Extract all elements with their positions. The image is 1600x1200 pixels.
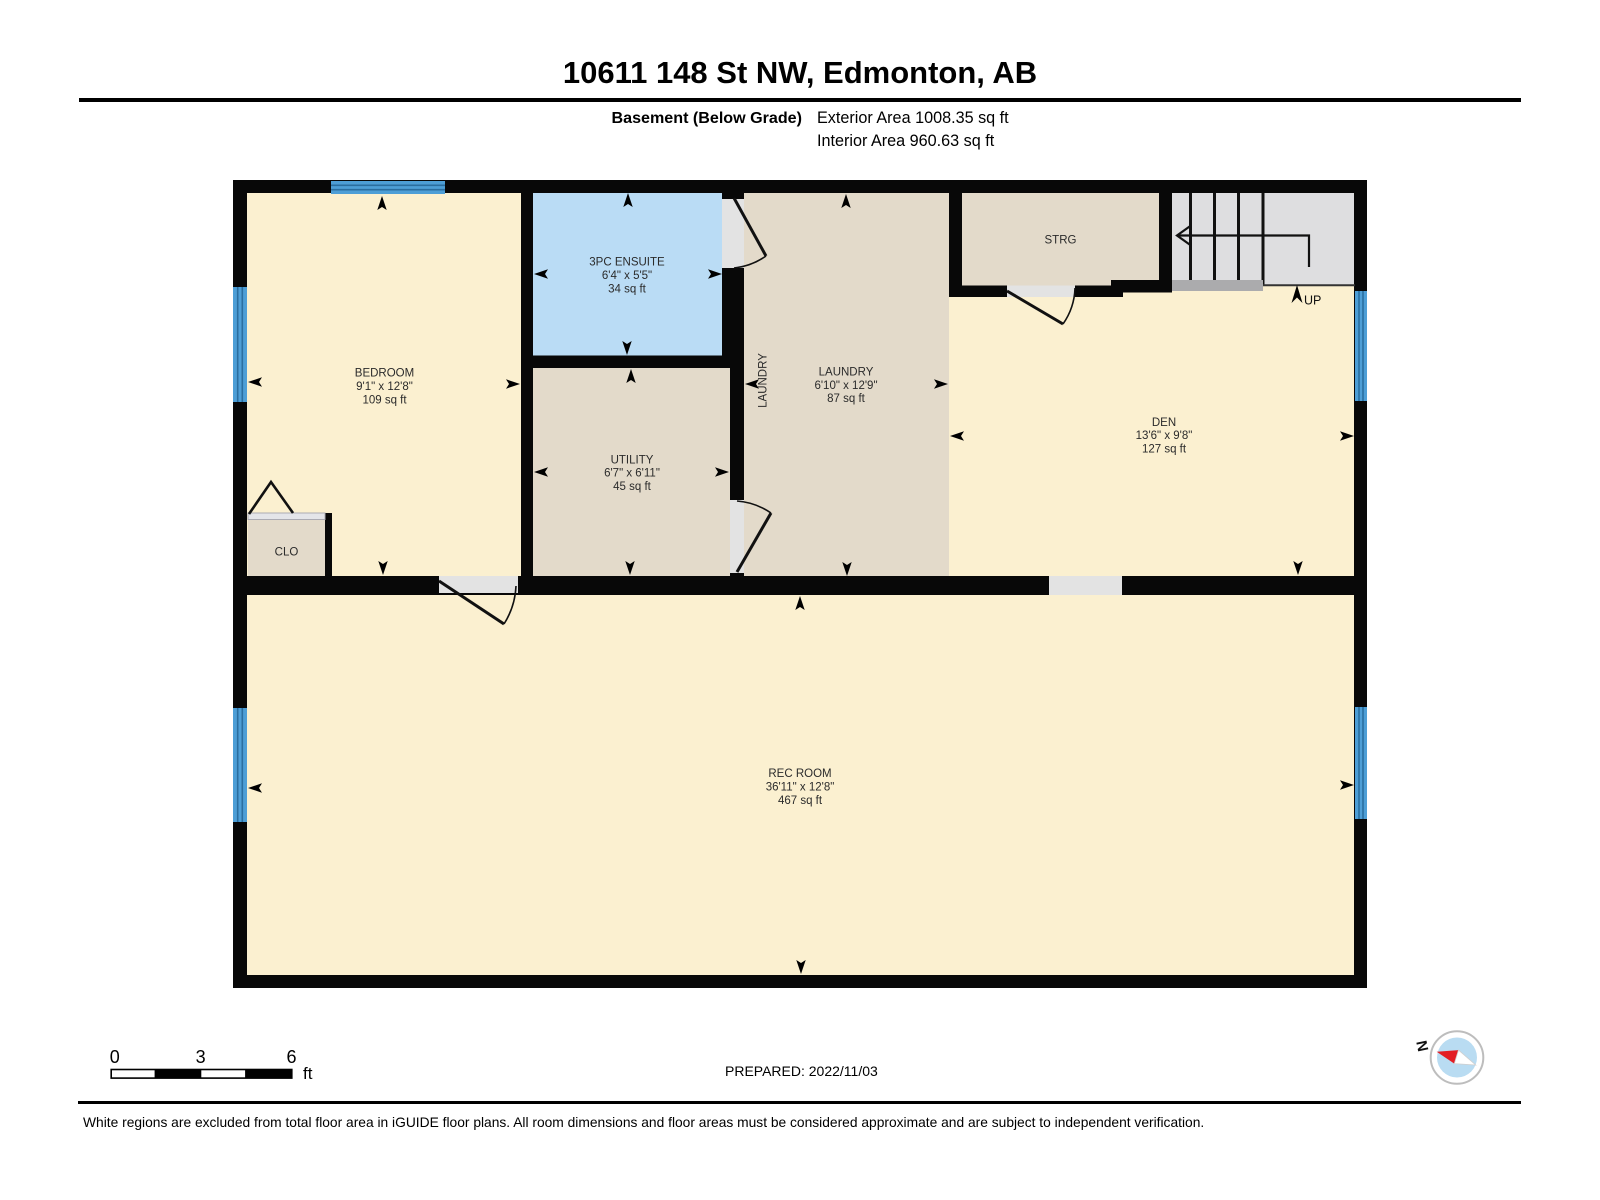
svg-text:109 sq ft: 109 sq ft xyxy=(362,394,407,406)
svg-text:6'4" x 5'5": 6'4" x 5'5" xyxy=(602,270,652,282)
svg-text:13'6" x 9'8": 13'6" x 9'8" xyxy=(1136,430,1193,442)
svg-text:LAUNDRY: LAUNDRY xyxy=(819,366,874,378)
svg-text:STRG: STRG xyxy=(1045,235,1077,247)
svg-text:REC ROOM: REC ROOM xyxy=(768,768,831,780)
svg-text:3PC ENSUITE: 3PC ENSUITE xyxy=(589,257,665,269)
svg-text:34 sq ft: 34 sq ft xyxy=(608,283,647,295)
svg-text:36'11" x 12'8": 36'11" x 12'8" xyxy=(766,782,835,794)
svg-text:6'7" x 6'11": 6'7" x 6'11" xyxy=(604,468,660,480)
svg-text:LAUNDRY: LAUNDRY xyxy=(758,353,770,408)
svg-text:UTILITY: UTILITY xyxy=(611,454,654,466)
svg-text:3: 3 xyxy=(196,1047,206,1067)
svg-text:127 sq ft: 127 sq ft xyxy=(1142,443,1187,455)
svg-text:UP: UP xyxy=(1304,294,1321,308)
svg-text:N: N xyxy=(1414,1039,1433,1053)
svg-text:9'1" x 12'8": 9'1" x 12'8" xyxy=(356,381,413,393)
svg-text:DEN: DEN xyxy=(1152,417,1176,429)
svg-text:6: 6 xyxy=(286,1047,296,1067)
svg-text:ft: ft xyxy=(303,1064,313,1083)
svg-text:CLO: CLO xyxy=(275,546,299,558)
svg-text:87 sq ft: 87 sq ft xyxy=(827,393,866,405)
svg-text:45 sq ft: 45 sq ft xyxy=(613,481,652,493)
svg-text:0: 0 xyxy=(110,1047,120,1067)
svg-text:6'10" x 12'9": 6'10" x 12'9" xyxy=(814,380,877,392)
svg-text:BEDROOM: BEDROOM xyxy=(355,368,414,380)
svg-text:467 sq ft: 467 sq ft xyxy=(778,795,823,807)
